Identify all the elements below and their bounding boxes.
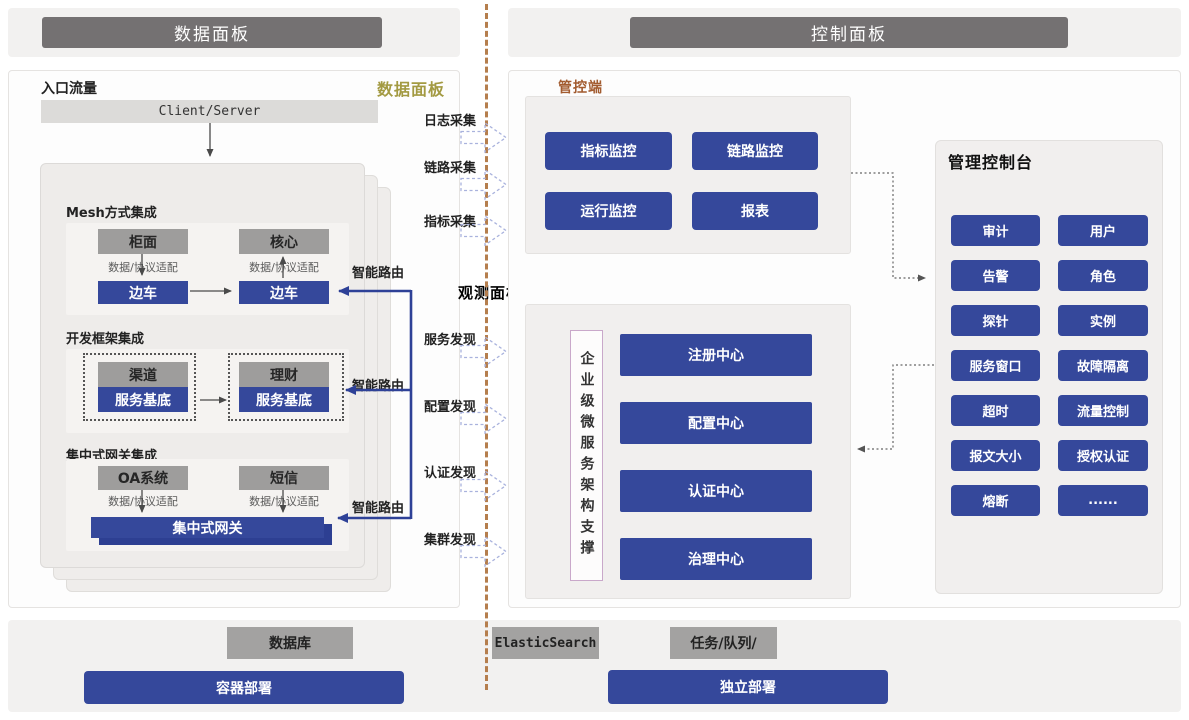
auth-center-button[interactable]: 认证中心 xyxy=(620,470,812,512)
microservice-support-box: 企业级微服务架构支撑 xyxy=(570,330,603,581)
gateway-section-box: OA系统 短信 数据/协议适配 数据/协议适配 集中式网关 xyxy=(66,459,349,551)
report-button[interactable]: 报表 xyxy=(692,192,818,230)
mesh-left-sidecar: 边车 xyxy=(98,281,188,304)
config-center-button[interactable]: 配置中心 xyxy=(620,402,812,444)
gateway-right-app: 短信 xyxy=(239,466,329,490)
framework-right-base: 服务基底 xyxy=(239,387,329,412)
management-console-title: 管理控制台 xyxy=(948,149,1033,173)
monitor-panel: 指标监控 链路监控 运行监控 报表 xyxy=(525,96,851,254)
console-item-audit[interactable]: 审计 xyxy=(951,215,1040,246)
observe-panel: 企业级微服务架构支撑 注册中心 配置中心 认证中心 治理中心 xyxy=(525,304,851,599)
footer-strip: 数据库 容器部署 ElasticSearch 任务/队列/ 独立部署 xyxy=(8,620,1181,712)
control-panel-header-tray: 控制面板 xyxy=(508,8,1181,57)
task-queue-box: 任务/队列/ xyxy=(670,627,777,659)
gateway-right-adapter: 数据/协议适配 xyxy=(239,493,329,509)
panel-divider xyxy=(485,4,488,690)
discover-label-cluster: 集群发现 xyxy=(424,529,476,548)
gateway-left-adapter: 数据/协议适配 xyxy=(98,493,188,509)
framework-section-box: 渠道 服务基底 理财 服务基底 xyxy=(66,349,349,433)
management-console-panel: 管理控制台 审计 用户 告警 角色 探针 实例 服务窗口 故障隔离 超时 流量控… xyxy=(935,140,1163,594)
integration-stack: Mesh方式集成 柜面 核心 数据/协议适配 数据/协议适配 边车 边车 开发框… xyxy=(40,163,365,568)
console-item-timeout[interactable]: 超时 xyxy=(951,395,1040,426)
mesh-section-box: 柜面 核心 数据/协议适配 数据/协议适配 边车 边车 xyxy=(66,223,349,315)
console-grid: 审计 用户 告警 角色 探针 实例 服务窗口 故障隔离 超时 流量控制 报文大小… xyxy=(951,215,1148,516)
mesh-right-sidecar: 边车 xyxy=(239,281,329,304)
data-panel-header-tray: 数据面板 xyxy=(8,8,460,57)
metric-monitor-button[interactable]: 指标监控 xyxy=(545,132,672,170)
standalone-deploy-bar: 独立部署 xyxy=(608,670,888,704)
container-deploy-bar: 容器部署 xyxy=(84,671,404,704)
control-plane-tag: 管控端 xyxy=(558,77,603,97)
smart-route-label-3: 智能路由 xyxy=(352,497,404,516)
console-item-role[interactable]: 角色 xyxy=(1058,260,1148,291)
runtime-monitor-button[interactable]: 运行监控 xyxy=(545,192,672,230)
mesh-right-app: 核心 xyxy=(239,229,329,254)
console-item-message-size[interactable]: 报文大小 xyxy=(951,440,1040,471)
mesh-left-app: 柜面 xyxy=(98,229,188,254)
centers-column: 注册中心 配置中心 认证中心 治理中心 xyxy=(620,334,812,580)
mesh-left-adapter: 数据/协议适配 xyxy=(98,259,188,275)
governance-center-button[interactable]: 治理中心 xyxy=(620,538,812,580)
discover-label-auth: 认证发现 xyxy=(424,462,476,481)
monitor-grid: 指标监控 链路监控 运行监控 报表 xyxy=(545,132,818,230)
control-panel-header: 控制面板 xyxy=(630,17,1068,48)
framework-right-app: 理财 xyxy=(239,362,329,387)
console-item-probe[interactable]: 探针 xyxy=(951,305,1040,336)
console-item-more[interactable]: ...... xyxy=(1058,485,1148,516)
gateway-left-app: OA系统 xyxy=(98,466,188,490)
discover-label-service: 服务发现 xyxy=(424,329,476,348)
console-item-alert[interactable]: 告警 xyxy=(951,260,1040,291)
registry-center-button[interactable]: 注册中心 xyxy=(620,334,812,376)
data-panel-header: 数据面板 xyxy=(42,17,382,48)
architecture-diagram: 数据面板 控制面板 入口流量 数据面板 Client/Server Mesh方式… xyxy=(0,0,1189,720)
console-item-fault-isolation[interactable]: 故障隔离 xyxy=(1058,350,1148,381)
framework-left-base: 服务基底 xyxy=(98,387,188,412)
database-box: 数据库 xyxy=(227,627,353,659)
collect-label-logs: 日志采集 xyxy=(424,110,476,129)
console-item-auth-cert[interactable]: 授权认证 xyxy=(1058,440,1148,471)
console-item-flow-control[interactable]: 流量控制 xyxy=(1058,395,1148,426)
entry-traffic-label: 入口流量 xyxy=(41,78,97,98)
framework-section-title: 开发框架集成 xyxy=(66,328,144,347)
collect-label-trace: 链路采集 xyxy=(424,157,476,176)
console-item-instance[interactable]: 实例 xyxy=(1058,305,1148,336)
console-item-circuit-break[interactable]: 熔断 xyxy=(951,485,1040,516)
console-item-service-window[interactable]: 服务窗口 xyxy=(951,350,1040,381)
collect-label-metrics: 指标采集 xyxy=(424,211,476,230)
discover-label-config: 配置发现 xyxy=(424,396,476,415)
client-server-bar: Client/Server xyxy=(41,100,378,123)
framework-left-app: 渠道 xyxy=(98,362,188,387)
trace-monitor-button[interactable]: 链路监控 xyxy=(692,132,818,170)
smart-route-label-1: 智能路由 xyxy=(352,262,404,281)
elasticsearch-box: ElasticSearch xyxy=(492,627,599,659)
microservice-support-label: 企业级微服务架构支撑 xyxy=(577,351,597,561)
smart-route-label-2: 智能路由 xyxy=(352,375,404,394)
gateway-bar: 集中式网关 xyxy=(91,517,324,538)
mesh-section-title: Mesh方式集成 xyxy=(66,202,157,221)
console-item-user[interactable]: 用户 xyxy=(1058,215,1148,246)
data-plane-tag: 数据面板 xyxy=(377,76,445,100)
mesh-right-adapter: 数据/协议适配 xyxy=(239,259,329,275)
